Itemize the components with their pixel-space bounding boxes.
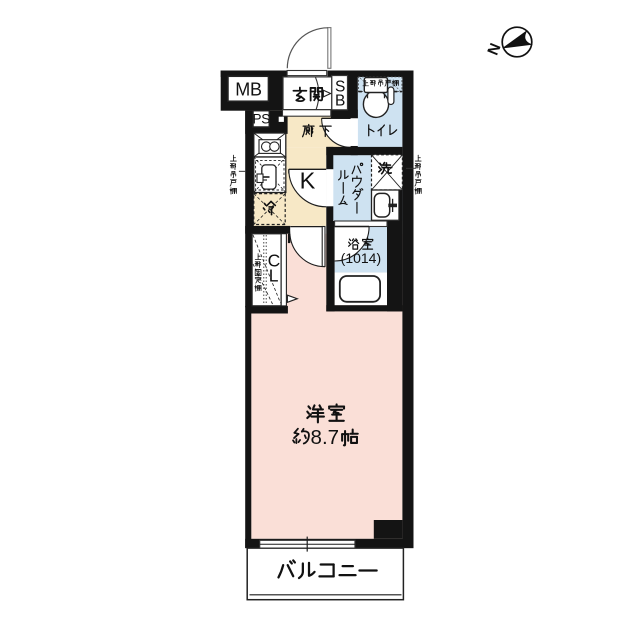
svg-text:PS: PS bbox=[252, 112, 270, 127]
svg-text:8.7: 8.7 bbox=[311, 426, 340, 449]
svg-text:(1014): (1014) bbox=[341, 250, 381, 266]
svg-text:L: L bbox=[269, 266, 279, 286]
svg-text:MB: MB bbox=[235, 80, 262, 100]
svg-text:K: K bbox=[300, 167, 316, 193]
svg-text:B: B bbox=[335, 92, 345, 109]
